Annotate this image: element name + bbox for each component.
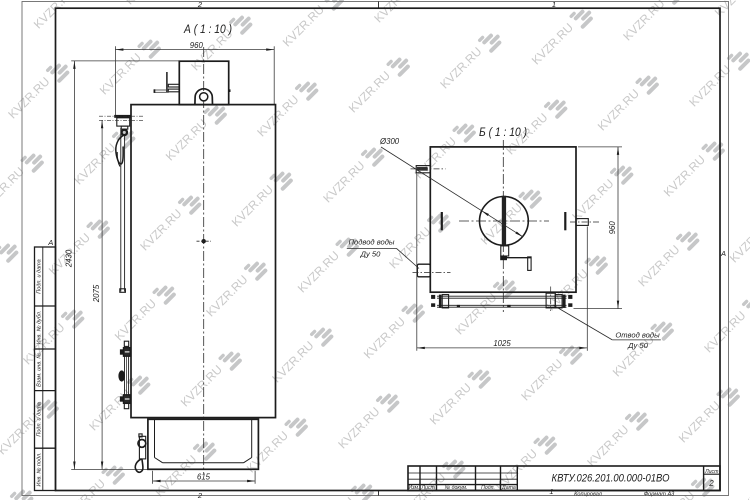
svg-text:Б ( 1 : 10 ): Б ( 1 : 10 ) — [479, 125, 527, 139]
svg-text:№ докум.: № докум. — [445, 485, 468, 491]
svg-text:Ду 50: Ду 50 — [627, 341, 649, 350]
svg-text:2430: 2430 — [65, 249, 74, 268]
svg-text:Инв. № подл.: Инв. № подл. — [36, 452, 42, 486]
svg-text:2075: 2075 — [92, 284, 101, 303]
svg-text:Подп.: Подп. — [481, 485, 495, 491]
svg-text:А ( 1 : 10 ): А ( 1 : 10 ) — [183, 22, 232, 36]
svg-text:960: 960 — [190, 41, 204, 50]
svg-text:А: А — [47, 238, 53, 247]
svg-text:Дата: Дата — [501, 485, 516, 491]
svg-text:А: А — [720, 249, 726, 258]
svg-text:Копировал: Копировал — [574, 492, 603, 498]
svg-text:Ду 50: Ду 50 — [360, 250, 382, 259]
svg-text:2: 2 — [708, 479, 714, 488]
svg-text:Подвод воды: Подвод воды — [348, 238, 394, 247]
svg-text:960: 960 — [608, 221, 617, 235]
svg-text:Лист: Лист — [421, 485, 436, 491]
svg-text:Отвод воды: Отвод воды — [615, 330, 660, 339]
svg-text:1: 1 — [549, 487, 553, 496]
svg-text:Подп. и дата: Подп. и дата — [36, 402, 42, 436]
svg-text:КВТУ.026.201.00.000-01ВО: КВТУ.026.201.00.000-01ВО — [552, 472, 670, 484]
svg-text:615: 615 — [197, 472, 211, 481]
svg-text:1025: 1025 — [493, 339, 511, 348]
svg-text:Ø300: Ø300 — [379, 137, 400, 146]
svg-text:Лист: Лист — [704, 469, 719, 475]
svg-text:Инв. № дубл.: Инв. № дубл. — [36, 311, 42, 345]
svg-text:Формат А3: Формат А3 — [644, 492, 675, 498]
svg-text:1: 1 — [552, 0, 556, 9]
svg-text:Изм.: Изм. — [408, 485, 419, 491]
svg-text:Подп. и дата: Подп. и дата — [36, 259, 42, 293]
svg-text:2: 2 — [197, 0, 203, 9]
svg-text:2: 2 — [197, 491, 203, 500]
svg-text:Взам. инв. №: Взам. инв. № — [36, 353, 42, 387]
